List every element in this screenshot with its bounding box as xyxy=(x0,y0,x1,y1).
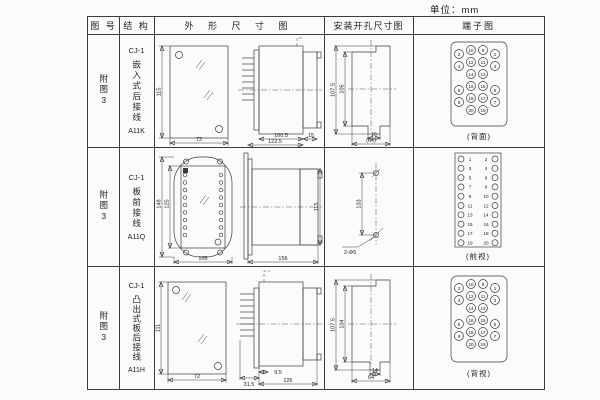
terminal-svg-row1: 2 10 9 1 4 12 11 3 14 13 6 16 15 5 8 18 … xyxy=(413,34,544,147)
terminal-number: 6 xyxy=(458,322,461,327)
mounting-drawing-row2: 133 2-Φ5 xyxy=(324,147,413,266)
terminal-number: 18 xyxy=(483,231,489,236)
terminal-number: 5 xyxy=(494,322,497,327)
terminal-svg-row3: 2 10 9 1 4 12 11 3 14 13 6 16 15 5 8 18 … xyxy=(413,266,544,389)
terminal-number: 20 xyxy=(483,241,489,246)
terminal-number: 12 xyxy=(468,294,474,299)
terminal-number: 16 xyxy=(483,222,489,227)
dim-label: 122.5 xyxy=(268,139,282,145)
terminal-number: 8 xyxy=(458,334,461,339)
header-structure: 结 构 xyxy=(119,17,154,34)
terminal-svg-row2: 1 3 5 7 9 11 13 15 17 19 2 4 6 8 10 12 1… xyxy=(413,147,544,266)
terminal-block xyxy=(455,153,501,247)
model-label: CJ-1 xyxy=(129,46,145,55)
dim-label: 156 xyxy=(278,256,287,262)
dim-label: 15 xyxy=(308,133,314,139)
terminal-number: 1 xyxy=(494,286,497,291)
terminal-number: 7 xyxy=(494,100,497,105)
terminal-number: 6 xyxy=(458,88,461,93)
mounting-svg-row2: 133 2-Φ5 xyxy=(326,147,411,266)
dim-label: 107.5 xyxy=(331,318,337,332)
screw-hole xyxy=(216,126,223,133)
header-fig-no: 图 号 xyxy=(88,17,119,34)
structure-label: 凸出式板后接线 xyxy=(132,295,141,362)
terminal-number: 6 xyxy=(485,175,488,180)
terminal-number: 10 xyxy=(468,282,474,287)
dim-label: 105 xyxy=(340,84,346,93)
terminal-number: 16 xyxy=(468,84,474,89)
terminal-number: 3 xyxy=(494,298,497,303)
terminal-number: 2 xyxy=(458,52,461,57)
mounting-drawing-row1: 107.5 105 16 (64) xyxy=(324,34,413,147)
terminal-number: 11 xyxy=(468,203,473,208)
view-caption: (前视) xyxy=(466,251,490,261)
dim-label: 115 xyxy=(314,203,320,212)
flange-outline xyxy=(174,157,232,257)
terminal-number: 8 xyxy=(485,185,488,190)
code-label: A11Q xyxy=(128,234,145,241)
dim-label: 107.5 xyxy=(331,83,337,97)
terminal-number: 11 xyxy=(481,294,486,299)
screw-hole xyxy=(173,287,180,294)
terminal-number: 2 xyxy=(485,157,488,162)
terminal-number: 15 xyxy=(467,222,473,227)
dim-label: 104 xyxy=(340,319,346,328)
fig-no-label: 附图3 xyxy=(99,311,108,344)
terminal-number: 20 xyxy=(468,108,474,113)
terminal-number: 14 xyxy=(468,306,474,311)
dim-label: 72 xyxy=(194,374,200,380)
terminal-number: 3 xyxy=(469,166,472,171)
terminal-number: 14 xyxy=(468,72,474,77)
terminal-number: 15 xyxy=(480,318,486,323)
terminal-number: 13 xyxy=(467,213,473,218)
terminal-number: 19 xyxy=(480,342,486,347)
terminal-number: 5 xyxy=(494,88,497,93)
dim-label: 31.5 xyxy=(244,382,255,388)
mounting-svg-row3: 107.5 104 14 64 xyxy=(326,266,411,389)
terminal-number: 7 xyxy=(469,185,472,190)
fig-no-cell-row2: 附图3 xyxy=(88,147,119,266)
terminal-number: 10 xyxy=(468,48,474,53)
mounting-svg-row1: 107.5 105 16 (64) xyxy=(326,34,411,147)
fig-no-cell-row1: 附图3 xyxy=(88,34,119,147)
terminal-number: 18 xyxy=(468,330,474,335)
dim-label: 14 xyxy=(372,368,378,374)
fig-no-cell-row3: 附图3 xyxy=(88,266,119,389)
terminal-number: 4 xyxy=(485,166,488,171)
fig-no-label: 附图3 xyxy=(99,74,108,107)
terminal-number: 8 xyxy=(458,100,461,105)
dim-label: 148 xyxy=(157,199,163,208)
terminal-number: 9 xyxy=(469,194,472,199)
mounting-drawing-row3: 107.5 104 14 64 xyxy=(324,266,413,389)
terminal-number: 13 xyxy=(480,306,486,311)
terminal-number: 19 xyxy=(467,241,473,246)
terminal-number: 1 xyxy=(494,52,497,57)
code-label: A11H xyxy=(128,367,145,374)
structure-cell-row3: CJ-1 凸出式板后接线 A11H xyxy=(119,266,154,389)
terminal-number: 17 xyxy=(480,330,486,335)
unit-label: 单位：mm xyxy=(430,2,479,16)
terminal-number: 13 xyxy=(480,72,486,77)
terminal-drawing-row2: 1 3 5 7 9 11 13 15 17 19 2 4 6 8 10 12 1… xyxy=(413,147,544,266)
outline-drawing-row3: 111 72 9.5 31.5 126 xyxy=(154,266,324,389)
keying-mark xyxy=(183,168,188,173)
terminal-drawing-row1: 2 10 9 1 4 12 11 3 14 13 6 16 15 5 8 18 … xyxy=(413,34,544,147)
terminal-number: 16 xyxy=(468,318,474,323)
dim-label: 64 xyxy=(368,375,374,381)
seal-hook xyxy=(264,271,270,282)
terminal-number: 3 xyxy=(494,64,497,69)
terminal-number: 7 xyxy=(494,334,497,339)
structure-label: 板前接线 xyxy=(132,187,141,229)
outline-svg-row3: 111 72 9.5 31.5 126 xyxy=(154,266,324,389)
view-caption: (背视) xyxy=(467,368,491,378)
structure-label: 嵌入式后接线 xyxy=(132,60,141,123)
dim-label: 115 xyxy=(157,88,163,97)
screw-hole xyxy=(215,363,222,370)
terminal-number: 4 xyxy=(458,64,461,69)
terminal-number: 19 xyxy=(480,108,486,113)
outline-svg-row2: 148 125 105 156 115 xyxy=(154,147,324,266)
terminal-number: 10 xyxy=(483,194,489,199)
outline-drawing-row1: 115 72 100.5 15 122.5 xyxy=(154,34,324,147)
model-label: CJ-1 xyxy=(129,173,145,182)
terminal-number: 11 xyxy=(481,60,486,65)
terminal-drawing-row3: 2 10 9 1 4 12 11 3 14 13 6 16 15 5 8 18 … xyxy=(413,266,544,389)
terminal-number: 1 xyxy=(469,157,472,162)
dim-label: 125 xyxy=(165,199,171,208)
relay-front-outline xyxy=(170,46,228,138)
terminal-number: 17 xyxy=(480,96,486,101)
terminal-number: 18 xyxy=(468,96,474,101)
outline-svg-row1: 115 72 100.5 15 122.5 xyxy=(154,34,324,147)
terminal-number: 12 xyxy=(468,60,474,65)
terminal-number: 20 xyxy=(468,342,474,347)
relay-front-outline xyxy=(168,282,226,374)
terminal-number: 12 xyxy=(483,203,489,208)
hole-callout: 2-Φ5 xyxy=(344,250,356,256)
code-label: A11K xyxy=(128,128,145,135)
terminal-number: 9 xyxy=(482,48,485,53)
seal-hook xyxy=(297,38,303,46)
dim-label: 133 xyxy=(357,199,363,208)
header-terminal: 端子图 xyxy=(413,17,544,34)
dim-label: 126 xyxy=(283,378,292,384)
fig-no-label: 附图3 xyxy=(99,190,108,223)
terminal-number: 9 xyxy=(482,282,485,287)
terminal-number: 4 xyxy=(458,298,461,303)
front-plate xyxy=(244,153,248,259)
spec-table: 图 号 结 构 外 形 尺 寸 图 安装开孔尺寸图 端子图 附图3 CJ-1 嵌… xyxy=(87,16,545,390)
header-outline: 外 形 尺 寸 图 xyxy=(154,17,324,34)
terminal-number: 15 xyxy=(480,84,486,89)
model-label: CJ-1 xyxy=(129,281,145,290)
terminal-number: 14 xyxy=(483,213,489,218)
view-caption: (背面) xyxy=(467,131,491,141)
dim-label: (64) xyxy=(366,138,376,144)
screw-hole xyxy=(176,52,183,59)
terminal-number: 17 xyxy=(467,231,473,236)
header-mounting: 安装开孔尺寸图 xyxy=(324,17,413,34)
dim-label: 105 xyxy=(198,256,207,262)
dim-label: 111 xyxy=(156,324,162,332)
structure-cell-row1: CJ-1 嵌入式后接线 A11K xyxy=(119,34,154,147)
terminal-number: 5 xyxy=(469,175,472,180)
terminal-number: 2 xyxy=(458,286,461,291)
relay-front-outline xyxy=(181,166,225,248)
terminal-plate xyxy=(254,288,259,368)
structure-cell-row2: CJ-1 板前接线 A11Q xyxy=(119,147,154,266)
dim-label: 9.5 xyxy=(274,370,282,376)
dim-label: 72 xyxy=(196,137,202,143)
outline-drawing-row2: 148 125 105 156 115 xyxy=(154,147,324,266)
